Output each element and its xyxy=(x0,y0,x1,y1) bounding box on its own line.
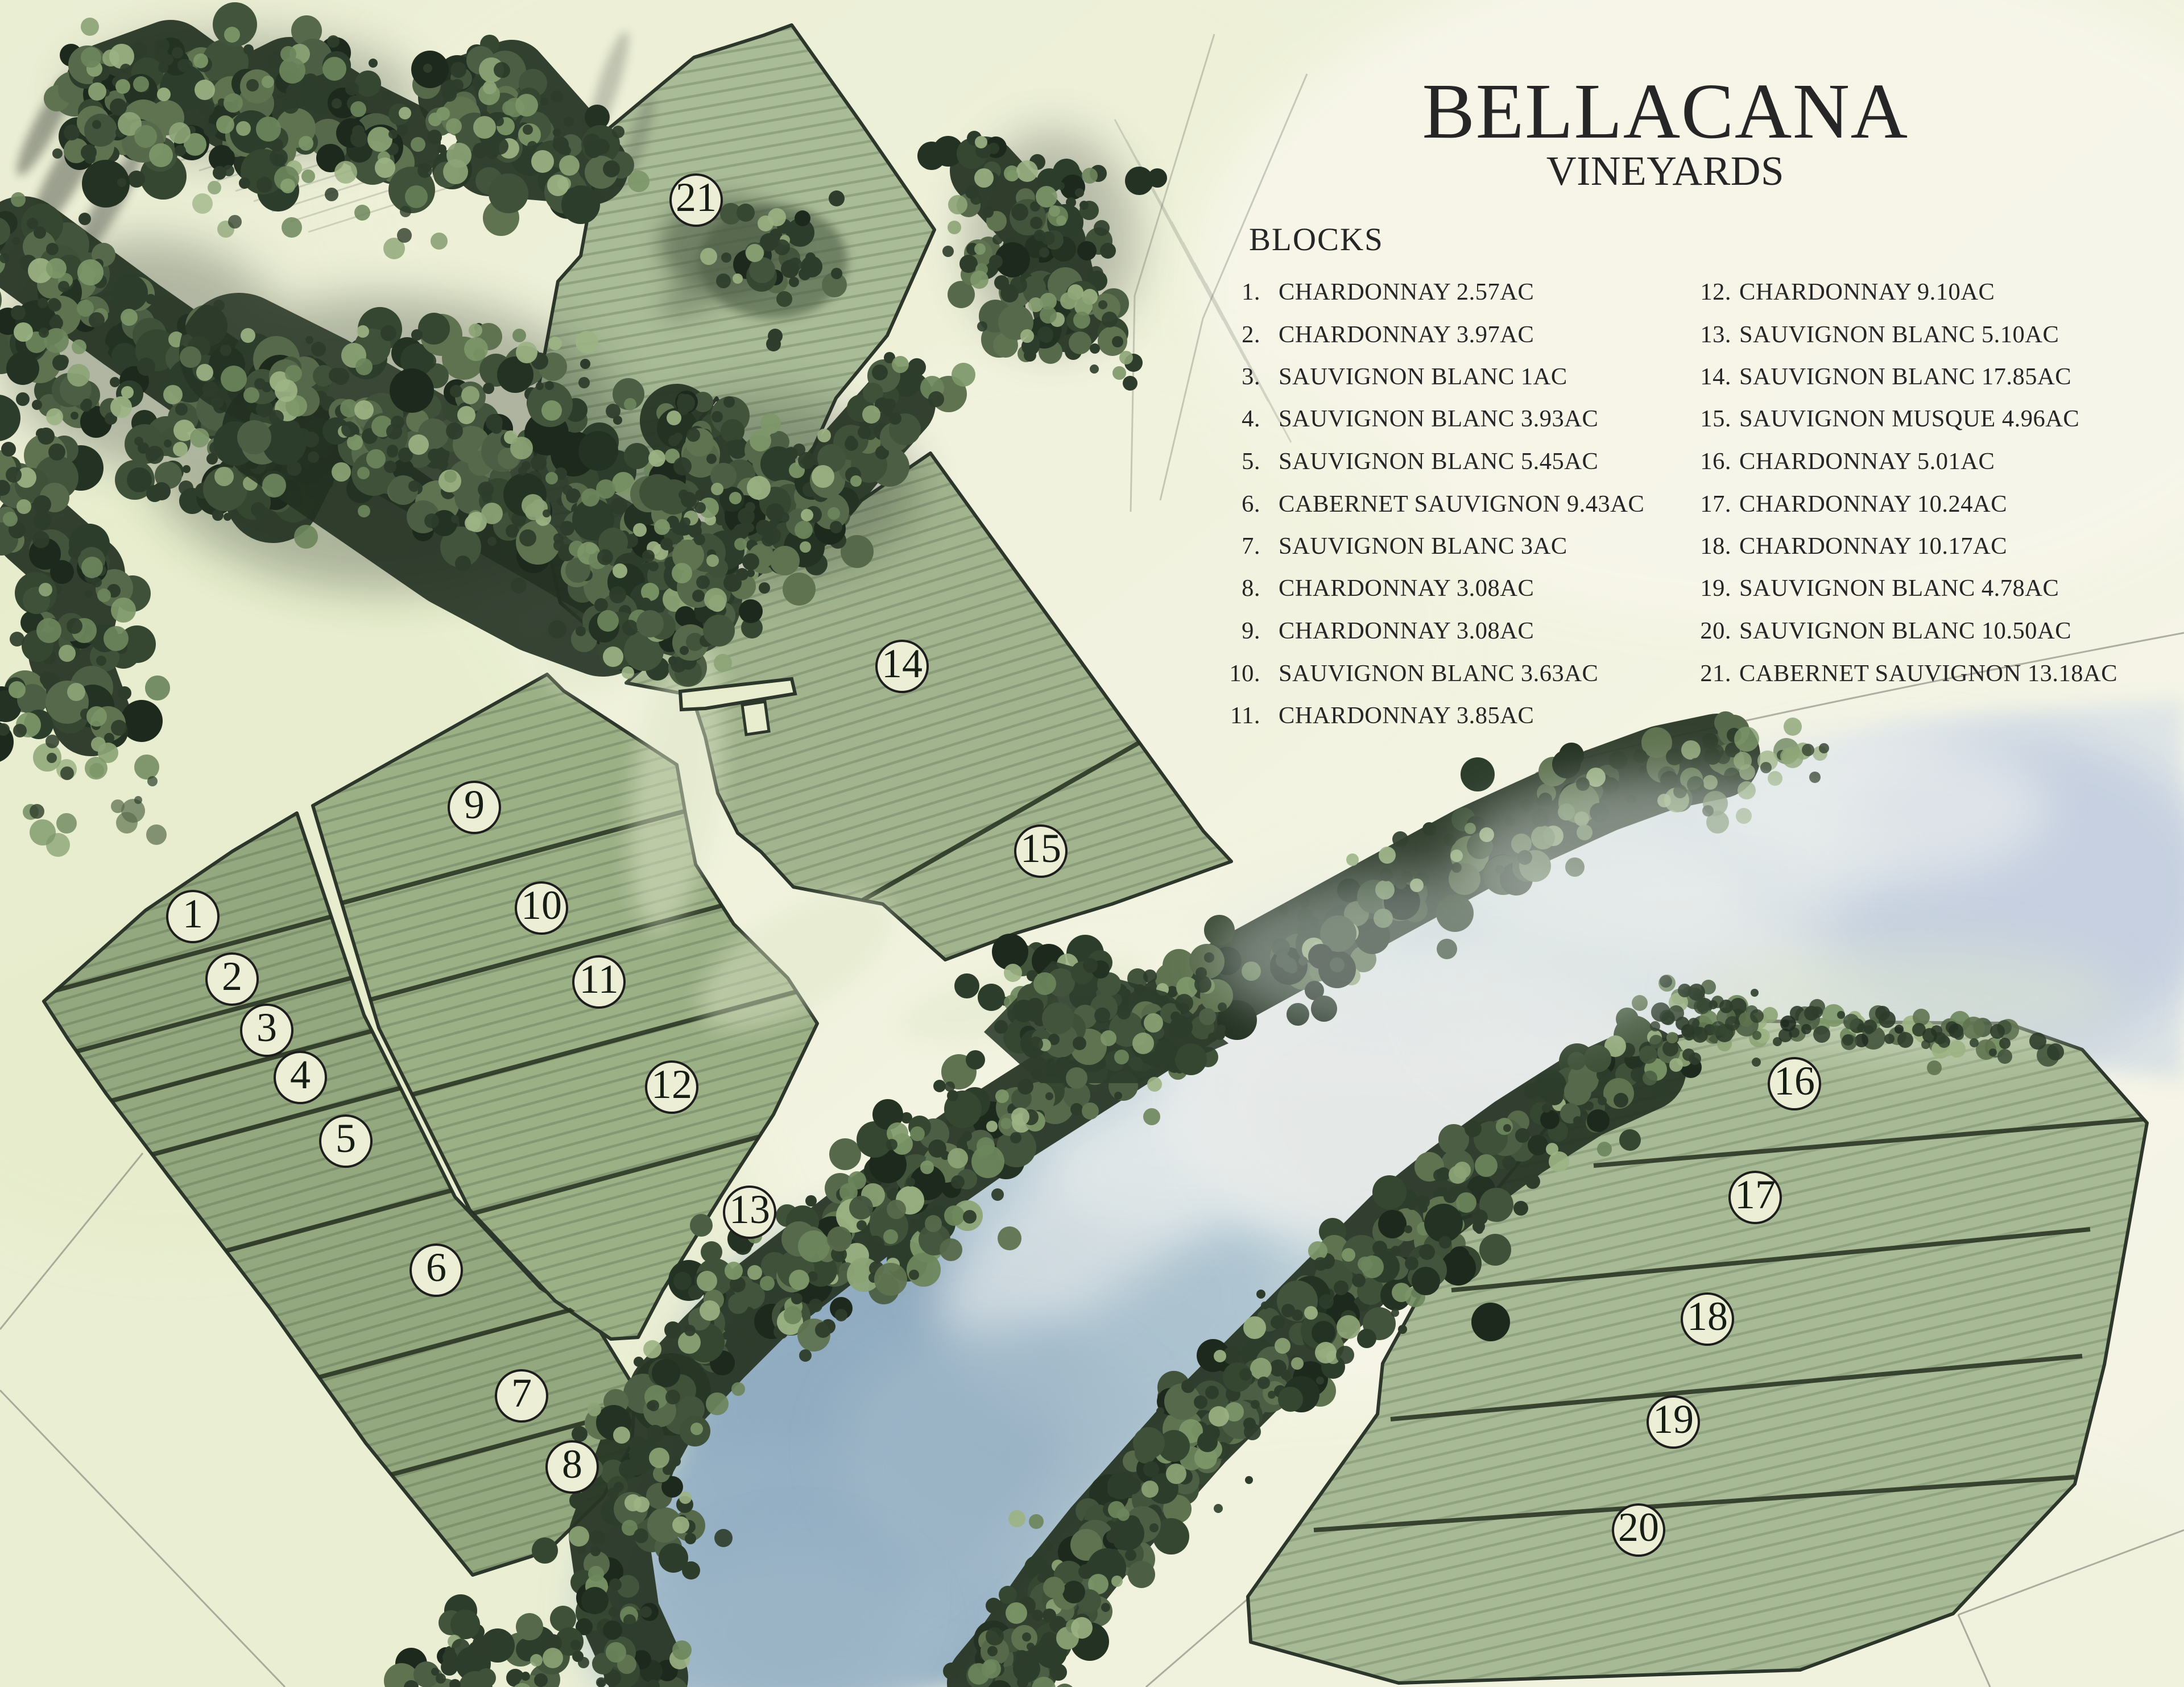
svg-text:5: 5 xyxy=(336,1116,356,1161)
svg-text:SAUVIGNON BLANC 3AC: SAUVIGNON BLANC 3AC xyxy=(1279,533,1567,559)
svg-text:20: 20 xyxy=(1618,1504,1659,1550)
svg-text:SAUVIGNON MUSQUE 4.96AC: SAUVIGNON MUSQUE 4.96AC xyxy=(1739,405,2079,432)
svg-text:16.: 16. xyxy=(1700,448,1731,475)
svg-text:CHARDONNAY 3.08AC: CHARDONNAY 3.08AC xyxy=(1279,575,1534,602)
svg-text:14.: 14. xyxy=(1700,363,1731,390)
svg-text:CHARDONNAY 9.10AC: CHARDONNAY 9.10AC xyxy=(1739,279,1995,305)
svg-text:18: 18 xyxy=(1687,1294,1728,1339)
svg-text:9: 9 xyxy=(464,782,485,827)
svg-text:17: 17 xyxy=(1735,1172,1776,1217)
svg-text:8.: 8. xyxy=(1242,575,1260,602)
svg-text:19.: 19. xyxy=(1700,575,1731,602)
svg-text:SAUVIGNON BLANC 1AC: SAUVIGNON BLANC 1AC xyxy=(1279,363,1567,390)
svg-text:CHARDONNAY 10.24AC: CHARDONNAY 10.24AC xyxy=(1739,491,2007,517)
svg-text:21.: 21. xyxy=(1700,660,1731,687)
svg-text:15.: 15. xyxy=(1700,405,1731,432)
svg-text:CHARDONNAY 5.01AC: CHARDONNAY 5.01AC xyxy=(1739,448,1995,475)
svg-text:18.: 18. xyxy=(1700,533,1731,559)
svg-text:SAUVIGNON BLANC 3.93AC: SAUVIGNON BLANC 3.93AC xyxy=(1279,405,1598,432)
svg-text:7.: 7. xyxy=(1242,533,1260,559)
svg-text:12.: 12. xyxy=(1700,279,1731,305)
svg-text:3: 3 xyxy=(257,1005,277,1050)
svg-text:10: 10 xyxy=(521,882,562,928)
svg-text:20.: 20. xyxy=(1700,617,1731,644)
svg-text:CABERNET SAUVIGNON 9.43AC: CABERNET SAUVIGNON 9.43AC xyxy=(1279,491,1644,517)
svg-text:9.: 9. xyxy=(1242,617,1260,644)
svg-text:BLOCKS: BLOCKS xyxy=(1249,222,1384,258)
svg-text:2.: 2. xyxy=(1242,321,1260,348)
svg-text:SAUVIGNON BLANC 5.45AC: SAUVIGNON BLANC 5.45AC xyxy=(1279,448,1598,475)
svg-text:10.: 10. xyxy=(1229,660,1260,687)
svg-text:8: 8 xyxy=(562,1441,582,1487)
svg-text:6.: 6. xyxy=(1242,491,1260,517)
svg-text:4: 4 xyxy=(290,1052,311,1097)
svg-text:17.: 17. xyxy=(1700,491,1731,517)
svg-text:2: 2 xyxy=(222,954,242,999)
svg-text:SAUVIGNON BLANC 3.63AC: SAUVIGNON BLANC 3.63AC xyxy=(1279,660,1598,687)
svg-text:13.: 13. xyxy=(1700,321,1731,348)
svg-text:CHARDONNAY 10.17AC: CHARDONNAY 10.17AC xyxy=(1739,533,2007,559)
svg-text:BELLACANA: BELLACANA xyxy=(1422,68,1908,155)
svg-text:21: 21 xyxy=(676,175,717,220)
svg-text:11: 11 xyxy=(579,956,618,1002)
svg-text:1: 1 xyxy=(183,891,203,936)
svg-text:6: 6 xyxy=(426,1245,446,1290)
svg-text:13: 13 xyxy=(729,1187,770,1232)
svg-text:15: 15 xyxy=(1020,826,1061,871)
svg-text:CHARDONNAY 3.08AC: CHARDONNAY 3.08AC xyxy=(1279,617,1534,644)
svg-text:11.: 11. xyxy=(1230,702,1260,729)
svg-text:4.: 4. xyxy=(1242,405,1260,432)
svg-text:14: 14 xyxy=(882,641,923,686)
svg-text:1.: 1. xyxy=(1242,279,1260,305)
svg-text:CHARDONNAY 2.57AC: CHARDONNAY 2.57AC xyxy=(1279,279,1534,305)
svg-text:CHARDONNAY 3.97AC: CHARDONNAY 3.97AC xyxy=(1279,321,1534,348)
svg-text:CHARDONNAY 3.85AC: CHARDONNAY 3.85AC xyxy=(1279,702,1534,729)
svg-text:SAUVIGNON BLANC 5.10AC: SAUVIGNON BLANC 5.10AC xyxy=(1739,321,2059,348)
svg-text:16: 16 xyxy=(1774,1058,1815,1104)
svg-text:SAUVIGNON BLANC 10.50AC: SAUVIGNON BLANC 10.50AC xyxy=(1739,617,2071,644)
svg-text:19: 19 xyxy=(1653,1396,1694,1442)
svg-text:7: 7 xyxy=(511,1370,532,1416)
svg-text:12: 12 xyxy=(651,1062,692,1107)
svg-text:5.: 5. xyxy=(1242,448,1260,475)
svg-text:CABERNET SAUVIGNON 13.18AC: CABERNET SAUVIGNON 13.18AC xyxy=(1739,660,2117,687)
svg-text:SAUVIGNON BLANC 4.78AC: SAUVIGNON BLANC 4.78AC xyxy=(1739,575,2059,602)
svg-text:3.: 3. xyxy=(1242,363,1260,390)
svg-text:SAUVIGNON BLANC 17.85AC: SAUVIGNON BLANC 17.85AC xyxy=(1739,363,2071,390)
svg-text:VINEYARDS: VINEYARDS xyxy=(1546,148,1784,194)
